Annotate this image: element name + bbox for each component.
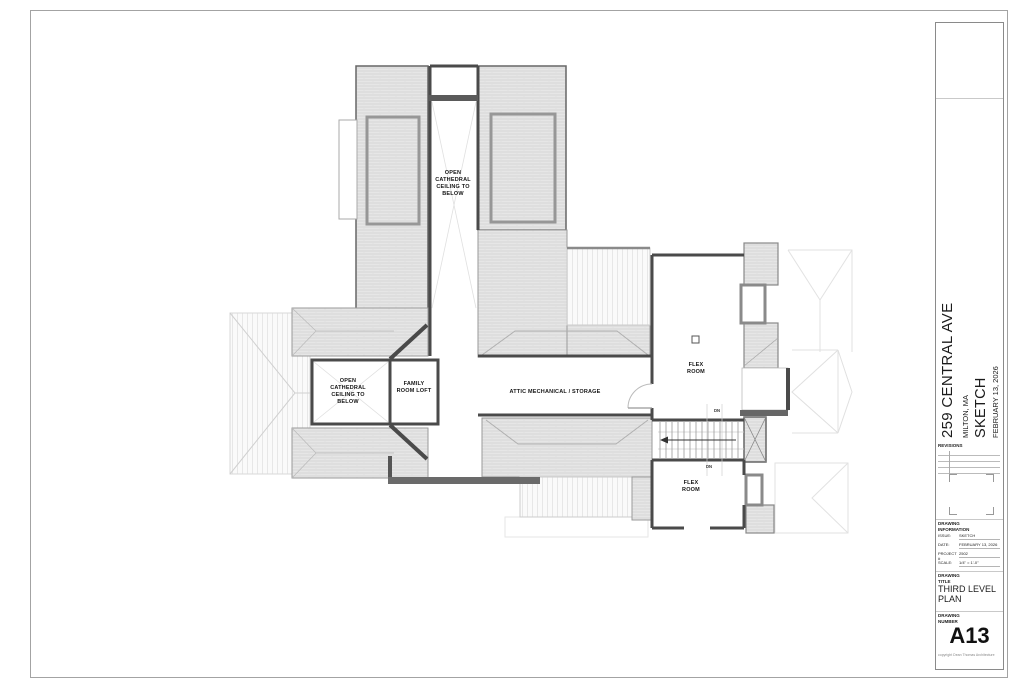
info-row-project: PROJECT # 2502 (938, 551, 1000, 559)
revision-tick (949, 451, 950, 474)
drawing-title: THIRD LEVEL PLAN (938, 584, 996, 605)
info-value: FEBRUARY 13, 2026 (959, 542, 1000, 549)
label-family-room-loft: FAMILY ROOM LOFT (392, 381, 436, 395)
stamp-corner (949, 474, 957, 482)
info-label: ISSUE: (938, 533, 958, 538)
info-label: DATE: (938, 542, 958, 547)
info-row-date: DATE: FEBRUARY 13, 2026 (938, 542, 1000, 550)
label-dn-lower: DN (706, 464, 712, 469)
title-block-divider (936, 98, 1003, 99)
stamp-corner (986, 474, 994, 482)
label-flex-room-lower: FLEX ROOM (671, 480, 711, 494)
title-block-divider (936, 571, 1003, 572)
project-address: 259 CENTRAL AVE (940, 303, 955, 438)
info-label: SCALE: (938, 560, 958, 565)
drawing-information-heading: DRAWING INFORMATION (938, 521, 969, 532)
title-block-divider (936, 519, 1003, 520)
title-block-divider (936, 611, 1003, 612)
stair (658, 404, 744, 476)
revision-line (938, 467, 1000, 468)
label-flex-room-upper: FLEX ROOM (676, 362, 716, 376)
info-value: SKETCH (959, 533, 1000, 540)
copyright-note: copyright Dean Thomas Architecture (938, 653, 995, 657)
door-swing (628, 384, 652, 408)
label-attic-mechanical-storage: ATTIC MECHANICAL / STORAGE (480, 389, 630, 396)
project-date: FEBRUARY 13, 2026 (992, 366, 1000, 438)
stamp-corner (949, 507, 957, 515)
title-block: 259 CENTRAL AVE MILTON, MA SKETCH FEBRUA… (935, 22, 1004, 670)
revision-line (938, 455, 1000, 456)
roofs-hatched (292, 66, 778, 533)
floor-plan-drawing (0, 0, 1024, 687)
info-row-issue: ISSUE: SKETCH (938, 533, 1000, 541)
drawing-number: A13 (936, 623, 1003, 649)
project-city: MILTON, MA (962, 395, 970, 438)
drawing-sheet: OPEN CATHEDRAL CEILING TO BELOW OPEN CAT… (0, 0, 1024, 687)
info-value: 2502 (959, 551, 1000, 558)
info-value: 1/4" = 1'-0" (959, 560, 1000, 567)
info-row-scale: SCALE: 1/4" = 1'-0" (938, 560, 1000, 568)
drawing-title-heading: DRAWING TITLE (938, 573, 960, 584)
label-open-cathedral-ceiling-top: OPEN CATHEDRAL CEILING TO BELOW (428, 170, 478, 199)
revisions-heading: REVISIONS (938, 443, 965, 449)
revision-line (938, 461, 1000, 462)
stamp-corner (986, 507, 994, 515)
project-issue: SKETCH (974, 377, 989, 438)
label-open-cathedral-ceiling-left: OPEN CATHEDRAL CEILING TO BELOW (315, 378, 381, 407)
label-dn-upper: DN (714, 408, 720, 413)
